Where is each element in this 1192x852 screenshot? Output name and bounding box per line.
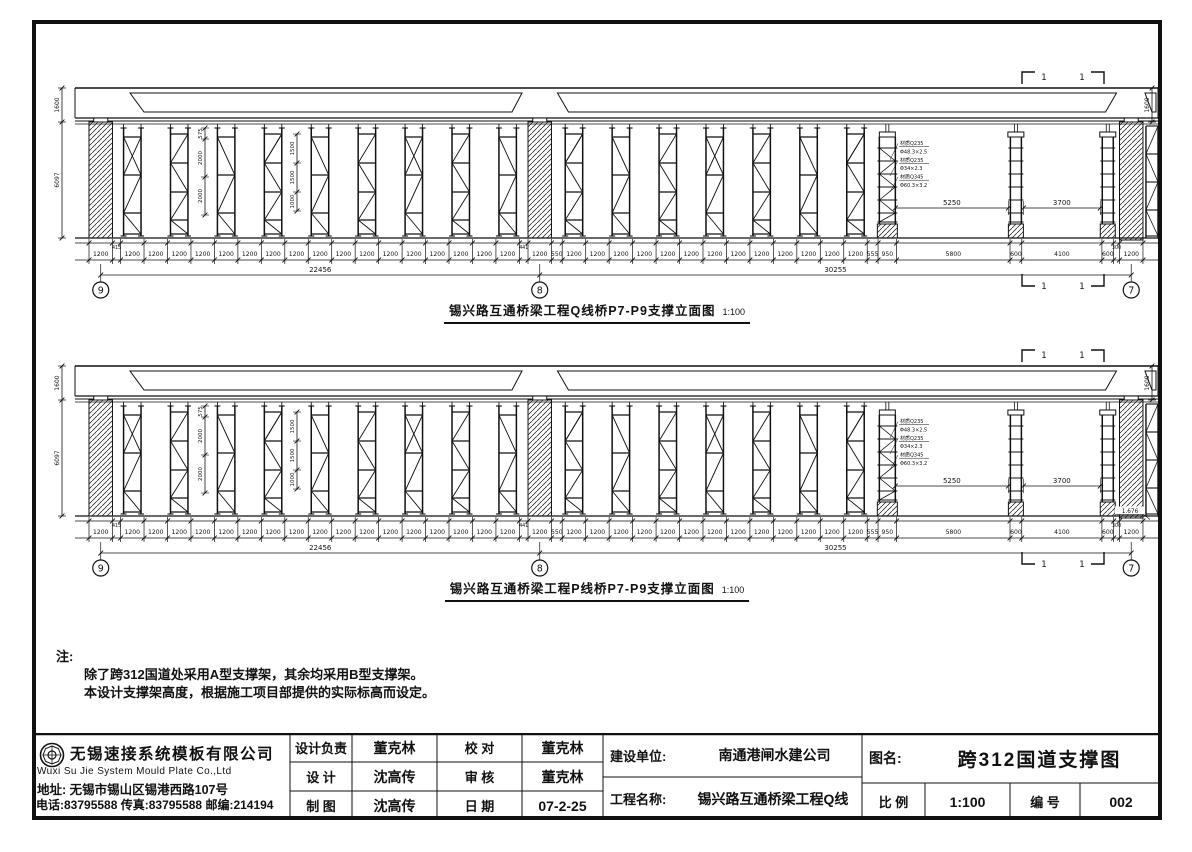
svg-text:1200: 1200 (730, 529, 746, 536)
svg-text:575: 575 (198, 406, 204, 417)
title-block: 无锡速接系统模板有限公司 Wuxi Su Jie System Mould Pl… (32, 733, 1162, 820)
piers (75, 400, 1160, 518)
svg-text:9: 9 (98, 564, 104, 575)
grid-bubbles: 987 (93, 560, 1140, 576)
svg-text:3700: 3700 (1053, 477, 1071, 485)
svg-text:1200: 1200 (532, 529, 548, 536)
svg-text:Φ60.3×3.2: Φ60.3×3.2 (900, 183, 927, 189)
svg-text:Φ48.3×2.5: Φ48.3×2.5 (900, 427, 927, 433)
svg-text:4100: 4100 (1054, 529, 1070, 536)
field-check-label: 校 对 (437, 733, 522, 762)
svg-text:1500: 1500 (290, 419, 296, 433)
svg-text:材质Q235: 材质Q235 (900, 418, 923, 425)
svg-text:1500: 1500 (290, 141, 296, 155)
svg-text:1200: 1200 (660, 529, 676, 536)
svg-text:1200: 1200 (359, 529, 375, 536)
svg-text:1200: 1200 (265, 529, 281, 536)
caption-p-line: 锡兴路互通桥梁工程P线桥P7-P9支撑立面图1:100 (32, 578, 1162, 602)
elevation-drawing-q-line: 材质Q235Φ48.3×2.5材质Q235Φ34×2.3材质Q345Φ60.3×… (32, 68, 1162, 318)
svg-text:2000: 2000 (198, 151, 204, 165)
svg-text:1200: 1200 (660, 251, 676, 258)
company-name-en: Wuxi Su Jie System Mould Plate Co.,Ltd (37, 766, 232, 777)
svg-text:1500: 1500 (290, 448, 296, 462)
svg-text:555: 555 (867, 251, 879, 258)
caption-q-line: 锡兴路互通桥梁工程Q线桥P7-P9支撑立面图1:100 (32, 300, 1162, 324)
svg-text:22456: 22456 (309, 266, 332, 274)
svg-text:1200: 1200 (777, 529, 793, 536)
field-draft-label: 制 图 (290, 791, 352, 820)
right-scaffold (1146, 404, 1158, 516)
svg-text:8: 8 (537, 564, 543, 575)
svg-text:7: 7 (1128, 286, 1134, 297)
field-scale-label: 比 例 (862, 783, 925, 820)
svg-text:材质Q345: 材质Q345 (900, 452, 923, 459)
svg-text:1200: 1200 (848, 529, 864, 536)
svg-text:2000: 2000 (198, 429, 204, 443)
dimensions: 5250370012004151200120012001200120012001… (75, 477, 1160, 560)
svg-text:600: 600 (1010, 529, 1022, 536)
svg-text:3700: 3700 (1053, 199, 1071, 207)
svg-text:8: 8 (537, 286, 543, 297)
svg-text:材质Q345: 材质Q345 (900, 174, 923, 181)
field-date-label: 日 期 (437, 791, 522, 820)
svg-text:1200: 1200 (730, 251, 746, 258)
right-scaffold (1146, 126, 1158, 238)
svg-text:441: 441 (519, 523, 528, 529)
caption-scale: 1:100 (722, 585, 745, 595)
dimensions: 5250370012004151200120012001200120012001… (75, 199, 1160, 282)
bridge-girder (75, 366, 1160, 402)
svg-text:1200: 1200 (242, 529, 258, 536)
svg-text:22456: 22456 (309, 544, 332, 552)
field-design-lead-value: 董克林 (352, 733, 437, 762)
svg-text:1: 1 (1041, 73, 1046, 83)
svg-text:1200: 1200 (683, 251, 699, 258)
svg-text:30255: 30255 (824, 544, 846, 552)
svg-text:1200: 1200 (1123, 251, 1139, 258)
svg-text:1200: 1200 (453, 251, 469, 258)
svg-text:1200: 1200 (383, 251, 399, 258)
svg-text:材质Q235: 材质Q235 (900, 157, 923, 164)
svg-text:950: 950 (882, 529, 894, 536)
field-review-label: 审 核 (437, 762, 522, 791)
svg-text:1200: 1200 (218, 251, 234, 258)
bridge-girder (75, 88, 1160, 124)
svg-text:550: 550 (551, 529, 563, 536)
svg-text:1: 1 (1079, 560, 1084, 570)
piers (75, 122, 1160, 240)
svg-text:1: 1 (1079, 351, 1084, 361)
svg-text:30255: 30255 (824, 266, 846, 274)
svg-text:441: 441 (519, 245, 528, 251)
drawing-sheet: 材质Q235Φ48.3×2.5材质Q235Φ34×2.3材质Q345Φ60.3×… (0, 0, 1192, 852)
svg-text:1200: 1200 (707, 251, 723, 258)
svg-text:9: 9 (98, 286, 104, 297)
company-phone: 电话:83795588 传真:83795588 邮编:214194 (36, 796, 273, 813)
field-client-label: 建设单位: (603, 733, 693, 777)
svg-text:1200: 1200 (336, 529, 352, 536)
svg-text:1200: 1200 (359, 251, 375, 258)
note-line: 除了跨312国道处采用A型支撑架，其余均采用B型支撑架。 (84, 666, 435, 684)
svg-text:1200: 1200 (590, 251, 606, 258)
field-review-value: 董克林 (522, 762, 603, 791)
svg-text:5800: 5800 (946, 251, 962, 258)
caption-text: 锡兴路互通桥梁工程Q线桥P7-P9支撑立面图 (449, 304, 715, 318)
svg-text:1200: 1200 (683, 529, 699, 536)
svg-text:5250: 5250 (943, 199, 961, 207)
svg-text:1200: 1200 (707, 529, 723, 536)
svg-text:1200: 1200 (406, 251, 422, 258)
svg-text:材质Q235: 材质Q235 (900, 140, 923, 147)
svg-text:Φ48.3×2.5: Φ48.3×2.5 (900, 149, 927, 155)
svg-text:1200: 1200 (336, 251, 352, 258)
svg-text:1500: 1500 (290, 170, 296, 184)
svg-text:1200: 1200 (613, 251, 629, 258)
field-design-lead-label: 设计负责 (290, 733, 352, 762)
scaffold-towers (121, 124, 868, 236)
svg-text:1200: 1200 (406, 529, 422, 536)
field-number-label: 编 号 (1010, 783, 1080, 820)
svg-text:1200: 1200 (430, 529, 446, 536)
svg-text:1200: 1200 (476, 529, 492, 536)
svg-text:5800: 5800 (946, 529, 962, 536)
svg-text:1200: 1200 (242, 251, 258, 258)
notes-heading: 注: (56, 648, 435, 666)
field-date-value: 07-2-25 (522, 791, 603, 820)
svg-text:Φ34×2.3: Φ34×2.3 (900, 166, 922, 172)
field-design-label: 设 计 (290, 762, 352, 791)
svg-text:1200: 1200 (195, 529, 211, 536)
svg-text:1200: 1200 (289, 529, 305, 536)
svg-text:1200: 1200 (801, 529, 817, 536)
svg-text:1: 1 (1079, 282, 1084, 292)
company-logo (38, 741, 66, 769)
scaffold-towers (121, 402, 868, 514)
svg-text:600: 600 (1102, 529, 1114, 536)
field-design-value: 沈高传 (352, 762, 437, 791)
svg-text:1200: 1200 (566, 251, 582, 258)
svg-text:1200: 1200 (312, 529, 328, 536)
svg-text:2000: 2000 (198, 189, 204, 203)
svg-text:1200: 1200 (383, 529, 399, 536)
svg-text:1200: 1200 (195, 251, 211, 258)
grid-bubbles: 987 (93, 282, 1140, 298)
svg-text:1200: 1200 (312, 251, 328, 258)
field-check-value: 董克林 (522, 733, 603, 762)
svg-text:1600: 1600 (54, 97, 61, 112)
svg-text:1200: 1200 (590, 529, 606, 536)
svg-text:1200: 1200 (1123, 529, 1139, 536)
svg-text:1200: 1200 (754, 251, 770, 258)
svg-text:300: 300 (1112, 523, 1121, 529)
field-draft-value: 沈高传 (352, 791, 437, 820)
svg-text:5250: 5250 (943, 477, 961, 485)
svg-text:1200: 1200 (824, 529, 840, 536)
svg-text:1200: 1200 (476, 251, 492, 258)
svg-text:950: 950 (882, 251, 894, 258)
svg-text:1200: 1200 (777, 251, 793, 258)
svg-text:1200: 1200 (754, 529, 770, 536)
svg-text:1: 1 (1079, 73, 1084, 83)
svg-text:材质Q235: 材质Q235 (900, 435, 923, 442)
svg-text:1200: 1200 (824, 251, 840, 258)
svg-text:1200: 1200 (171, 529, 187, 536)
svg-text:7: 7 (1128, 564, 1134, 575)
general-notes: 注: 除了跨312国道处采用A型支撑架，其余均采用B型支撑架。 本设计支撑架高度… (56, 648, 435, 702)
svg-text:415: 415 (112, 245, 121, 251)
svg-text:1200: 1200 (453, 529, 469, 536)
svg-text:1200: 1200 (801, 251, 817, 258)
svg-text:555: 555 (867, 529, 879, 536)
svg-text:1200: 1200 (500, 529, 516, 536)
field-sheet-name-label: 图名: (862, 733, 922, 783)
svg-text:1200: 1200 (93, 251, 109, 258)
field-scale-value: 1:100 (925, 783, 1010, 820)
svg-text:1600: 1600 (54, 375, 61, 390)
svg-text:6097: 6097 (54, 450, 61, 465)
svg-text:1200: 1200 (125, 251, 141, 258)
svg-text:1200: 1200 (148, 251, 164, 258)
svg-text:1200: 1200 (532, 251, 548, 258)
svg-text:6097: 6097 (54, 172, 61, 187)
svg-text:Φ34×2.3: Φ34×2.3 (900, 444, 922, 450)
svg-text:1.676: 1.676 (1122, 509, 1139, 515)
svg-text:4100: 4100 (1054, 251, 1070, 258)
company-name: 无锡速接系统模板有限公司 (70, 742, 274, 764)
svg-text:1: 1 (1041, 282, 1046, 292)
svg-text:1200: 1200 (430, 251, 446, 258)
svg-text:600: 600 (1010, 251, 1022, 258)
field-project-label: 工程名称: (603, 777, 693, 820)
svg-text:1200: 1200 (613, 529, 629, 536)
svg-text:1200: 1200 (218, 529, 234, 536)
svg-text:1200: 1200 (265, 251, 281, 258)
svg-text:1200: 1200 (171, 251, 187, 258)
svg-text:1200: 1200 (289, 251, 305, 258)
svg-text:600: 600 (1102, 251, 1114, 258)
svg-text:1200: 1200 (848, 251, 864, 258)
svg-text:1000: 1000 (290, 472, 296, 486)
svg-text:550: 550 (551, 251, 563, 258)
svg-text:1200: 1200 (566, 529, 582, 536)
svg-text:1: 1 (1041, 351, 1046, 361)
caption-scale: 1:100 (722, 307, 745, 317)
svg-text:1200: 1200 (500, 251, 516, 258)
svg-text:1600: 1600 (1144, 97, 1151, 112)
svg-text:1200: 1200 (637, 251, 653, 258)
svg-text:1200: 1200 (93, 529, 109, 536)
field-project-value: 锡兴路互通桥梁工程Q线 (684, 777, 862, 820)
caption-text: 锡兴路互通桥梁工程P线桥P7-P9支撑立面图 (450, 582, 715, 596)
svg-text:300: 300 (1112, 245, 1121, 251)
svg-text:2000: 2000 (198, 467, 204, 481)
elevation-drawing-p-line: 材质Q235Φ48.3×2.5材质Q235Φ34×2.3材质Q345Φ60.3×… (32, 346, 1162, 596)
field-number-value: 002 (1080, 783, 1162, 820)
svg-text:1600: 1600 (1144, 375, 1151, 390)
svg-text:1200: 1200 (148, 529, 164, 536)
field-sheet-name-value: 跨312国道支撑图 (917, 733, 1162, 783)
svg-text:415: 415 (112, 523, 121, 529)
svg-text:1000: 1000 (290, 194, 296, 208)
svg-text:1200: 1200 (125, 529, 141, 536)
svg-text:1: 1 (1041, 560, 1046, 570)
note-line: 本设计支撑架高度，根据施工项目部提供的实际标高而设定。 (84, 684, 435, 702)
svg-text:575: 575 (198, 128, 204, 139)
field-client-value: 南通港闸水建公司 (687, 733, 862, 777)
svg-text:1200: 1200 (637, 529, 653, 536)
svg-text:Φ60.3×3.2: Φ60.3×3.2 (900, 461, 927, 467)
